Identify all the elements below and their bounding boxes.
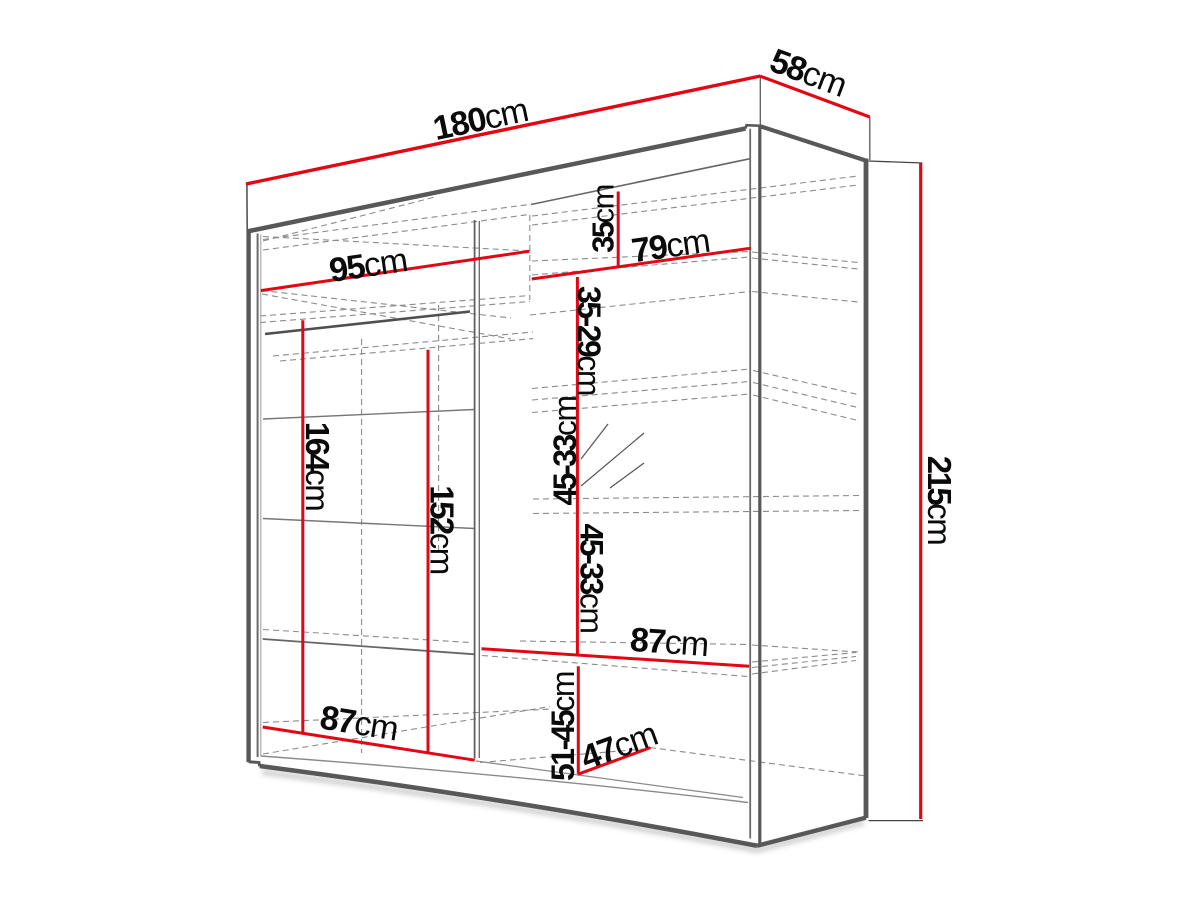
svg-text:164cm: 164cm (299, 422, 336, 511)
svg-text:45-33cm: 45-33cm (574, 524, 610, 633)
svg-text:87cm: 87cm (629, 621, 710, 664)
svg-text:45-33cm: 45-33cm (547, 397, 583, 506)
svg-text:35cm: 35cm (586, 185, 621, 253)
svg-text:35-29cm: 35-29cm (571, 286, 607, 395)
svg-text:51-45cm: 51-45cm (545, 672, 581, 781)
svg-text:152cm: 152cm (424, 485, 461, 574)
svg-text:215cm: 215cm (921, 456, 958, 545)
